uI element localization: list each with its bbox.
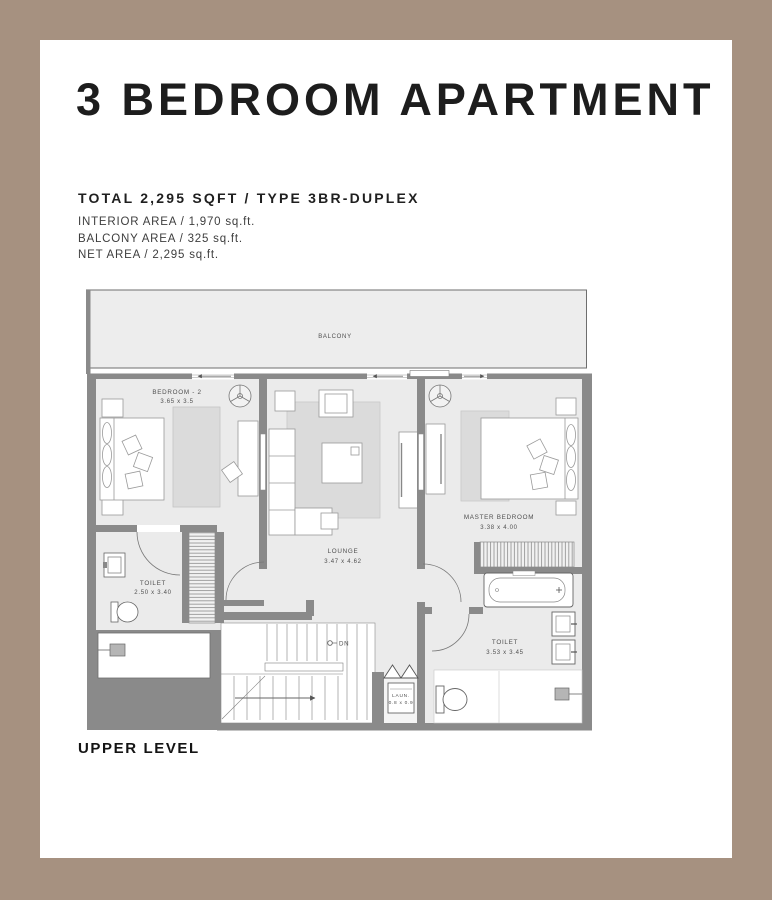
stairs-handrail	[265, 663, 343, 671]
level-label: UPPER LEVEL	[78, 740, 200, 757]
sink-icon	[552, 612, 577, 636]
stairs-dn-label: DN	[339, 641, 349, 648]
stairs	[221, 623, 375, 723]
sofa-icon	[269, 429, 295, 535]
lounge-label: LOUNGE	[328, 548, 359, 555]
rug	[173, 407, 220, 507]
ceiling-fan-icon	[229, 385, 251, 407]
shower-icon	[110, 644, 125, 656]
nightstand	[556, 398, 576, 415]
closet-hatch	[189, 532, 215, 623]
bedroom2-dims: 3.65 x 3.5	[160, 399, 193, 405]
spec-line-net: NET AREA / 2,295 sq.ft.	[78, 247, 255, 264]
tub-ledge	[513, 571, 535, 576]
armchair-seat	[325, 394, 347, 413]
nightstand	[102, 399, 123, 417]
wall-hall-right	[417, 602, 425, 723]
balcony-floor	[87, 290, 587, 368]
faucet	[103, 562, 107, 568]
wall-stairs-top	[214, 612, 312, 620]
coffee-table-tray	[351, 447, 359, 455]
floor-plan: BALCONY	[85, 287, 595, 732]
side-table	[275, 391, 295, 411]
pillow	[567, 425, 576, 446]
balcony-label: BALCONY	[318, 334, 352, 340]
toilet2-label: TOILET	[492, 639, 518, 646]
lounge-dims: 3.47 x 4.62	[324, 559, 361, 565]
shower-icon	[555, 688, 569, 700]
toilet-bowl	[117, 602, 138, 622]
side-table	[321, 513, 338, 529]
page-frame: 3 BEDROOM APARTMENT TOTAL 2,295 SQFT / T…	[0, 0, 772, 900]
toilet1-dims: 2.50 x 3.40	[134, 590, 171, 596]
bedroom2-label: BEDROOM - 2	[152, 389, 201, 396]
ceiling-fan-icon	[429, 385, 451, 407]
wall-hall-left	[222, 600, 264, 606]
cushion	[125, 471, 143, 489]
pocket-door	[261, 434, 266, 490]
laundry-dims: 0.8 x 0.9	[389, 700, 414, 706]
spec-title: TOTAL 2,295 SQFT / TYPE 3BR-DUPLEX	[78, 190, 420, 206]
master-label: MASTER BEDROOM	[464, 514, 534, 521]
shower-room	[98, 633, 210, 678]
spec-line-interior: INTERIOR AREA / 1,970 sq.ft.	[78, 214, 255, 231]
sink-icon	[552, 640, 577, 664]
pillow	[567, 447, 576, 468]
toilet2-dims: 3.53 x 3.45	[486, 650, 523, 656]
pillow	[103, 423, 112, 444]
toilet-bowl	[443, 689, 467, 711]
laundry-label: LAUN.	[392, 693, 410, 699]
sliding-panel	[410, 371, 449, 377]
bed-icon	[481, 418, 578, 499]
pocket-door	[419, 434, 424, 490]
wall-laundry-left	[372, 672, 384, 723]
cushion	[530, 472, 547, 489]
balcony-side-wall	[86, 290, 91, 374]
stairs-well	[221, 623, 375, 723]
balcony: BALCONY	[86, 290, 587, 374]
tv-unit	[426, 424, 445, 494]
spec-lines: INTERIOR AREA / 1,970 sq.ft. BALCONY ARE…	[78, 214, 255, 264]
nightstand	[556, 501, 576, 515]
toilet1-label: TOILET	[140, 580, 166, 587]
pillow	[567, 470, 576, 491]
desk	[238, 421, 258, 496]
wardrobe-hatch	[480, 542, 574, 567]
page-title: 3 BEDROOM APARTMENT	[76, 74, 715, 126]
page: 3 BEDROOM APARTMENT TOTAL 2,295 SQFT / T…	[40, 40, 732, 858]
spec-line-balcony: BALCONY AREA / 325 sq.ft.	[78, 231, 255, 248]
pillow	[103, 467, 112, 488]
floor-plan-container: BALCONY	[85, 287, 595, 732]
master-dims: 3.38 x 4.00	[480, 525, 517, 531]
pillow	[103, 445, 112, 466]
